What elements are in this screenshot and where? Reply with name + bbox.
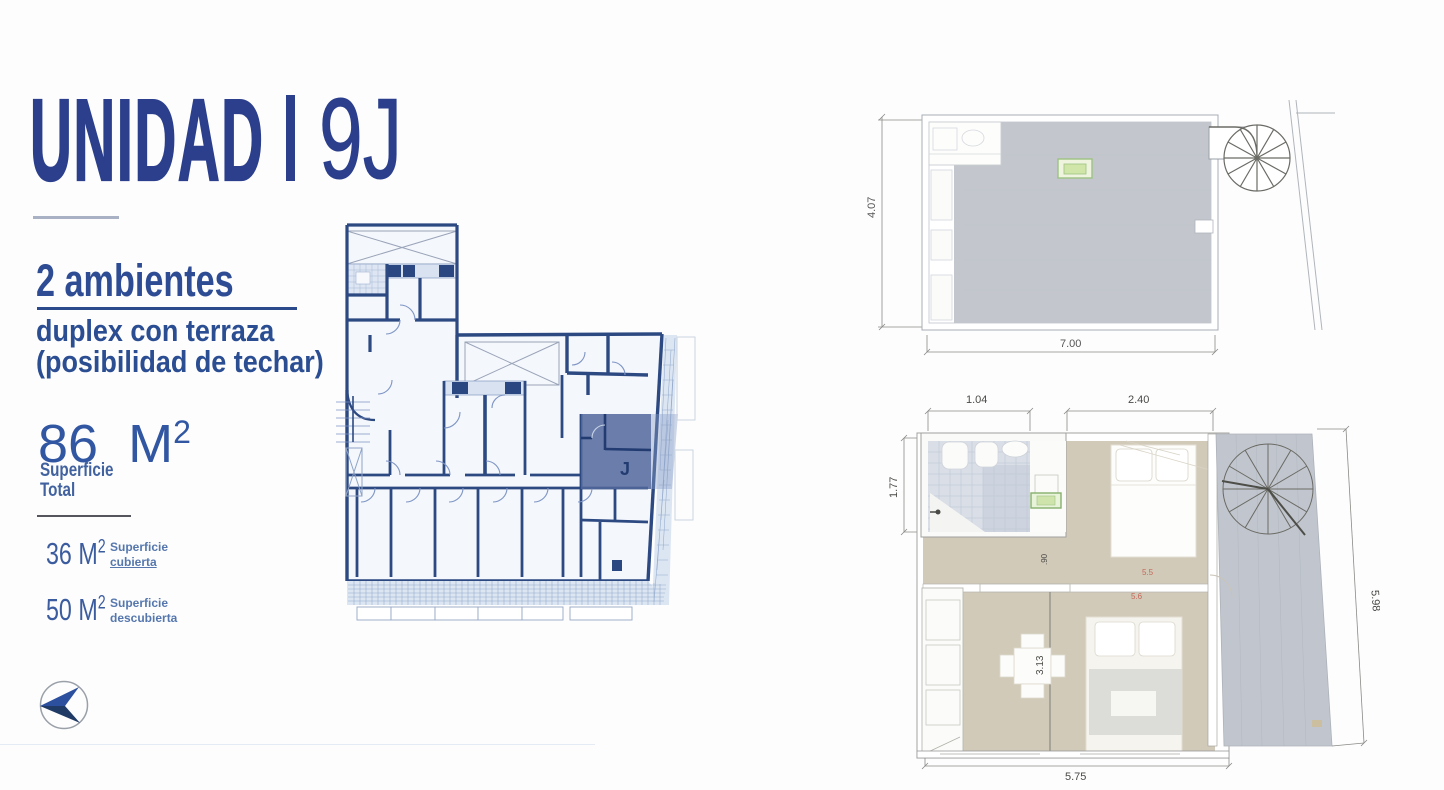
svg-text:1.77: 1.77: [888, 477, 900, 498]
svg-text:3.13: 3.13: [1035, 655, 1046, 675]
svg-text:.90: .90: [1040, 553, 1049, 565]
svg-text:7.00: 7.00: [1060, 338, 1081, 350]
svg-text:5.75: 5.75: [1065, 771, 1086, 783]
svg-text:5.5: 5.5: [1142, 568, 1154, 577]
svg-text:5.98: 5.98: [1368, 590, 1380, 612]
svg-text:J: J: [620, 459, 630, 479]
svg-text:2.40: 2.40: [1128, 394, 1149, 406]
svg-text:5.6: 5.6: [1131, 592, 1143, 601]
svg-text:4.07: 4.07: [866, 197, 878, 218]
svg-text:1.04: 1.04: [966, 394, 987, 406]
